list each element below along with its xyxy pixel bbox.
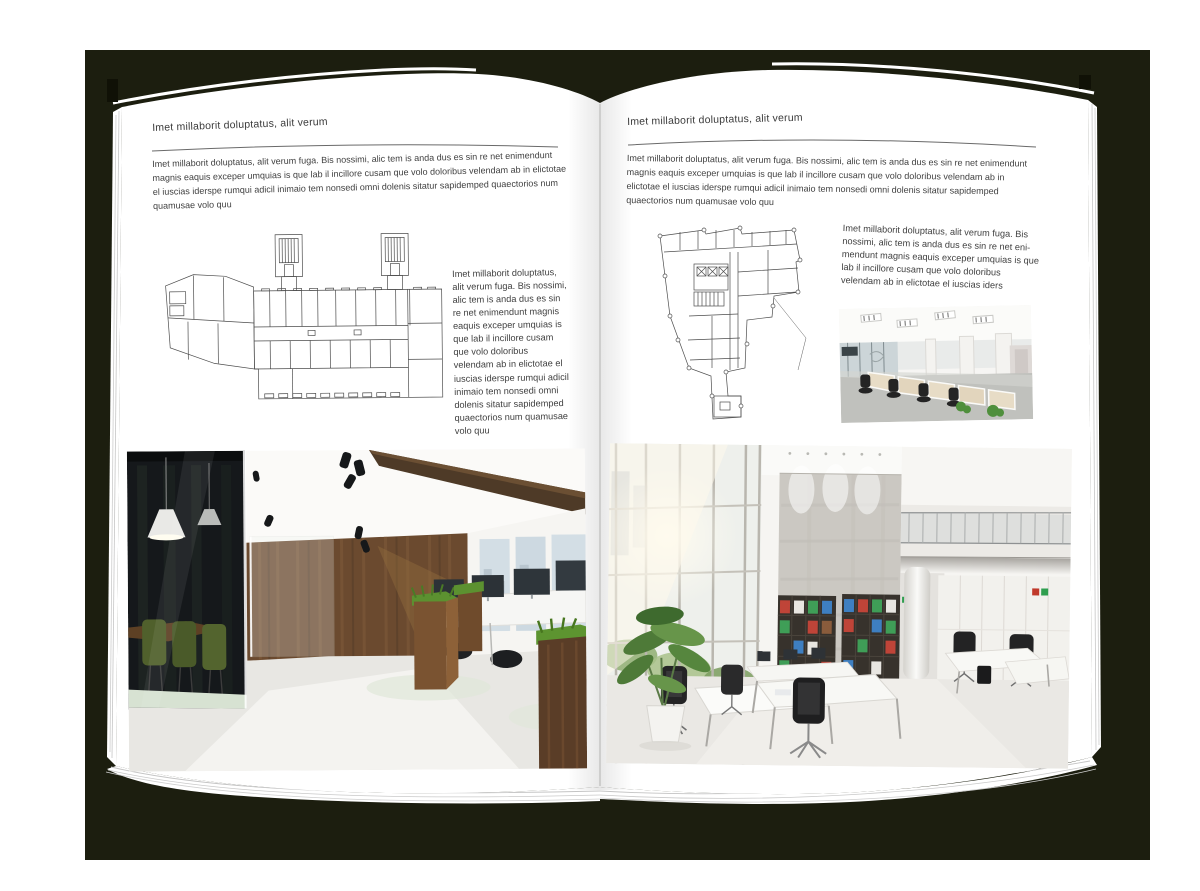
right-plan-caption: Imet millaborit doluptatus, alit verum f… xyxy=(841,222,1043,294)
magazine-spread-mockup: Imet millaborit doluptatus, alit verum I… xyxy=(0,0,1200,891)
trash-bin xyxy=(977,666,991,684)
right-header-rule xyxy=(626,132,1040,150)
main-wing-outline xyxy=(254,289,443,399)
left-page-intro: Imet millaborit doluptatus, alit verum f… xyxy=(152,149,568,214)
left-plan-caption: Imet millaborit doluptatus, alit verum f… xyxy=(452,266,571,438)
window-ticks xyxy=(262,287,437,398)
left-floor-plan xyxy=(157,227,449,419)
mezzanine-balcony xyxy=(900,447,1072,575)
glass-meeting-room xyxy=(127,451,248,710)
corridor-lines xyxy=(730,252,738,370)
right-floor-plan xyxy=(648,220,824,427)
round-column xyxy=(903,567,930,679)
small-office-photo xyxy=(839,305,1033,423)
first-aid-sign xyxy=(1032,588,1039,595)
corridor-lines xyxy=(254,325,408,341)
right-office-photo xyxy=(606,443,1072,769)
right-page-intro: Imet millaborit doluptatus, alit verum f… xyxy=(626,152,1032,213)
glass-partition xyxy=(249,536,334,657)
aed-sign xyxy=(1041,588,1048,595)
elevator-core xyxy=(694,264,728,306)
stair-tower-a xyxy=(275,234,303,290)
stair-tower-b xyxy=(381,233,409,289)
left-office-photo xyxy=(127,448,587,771)
